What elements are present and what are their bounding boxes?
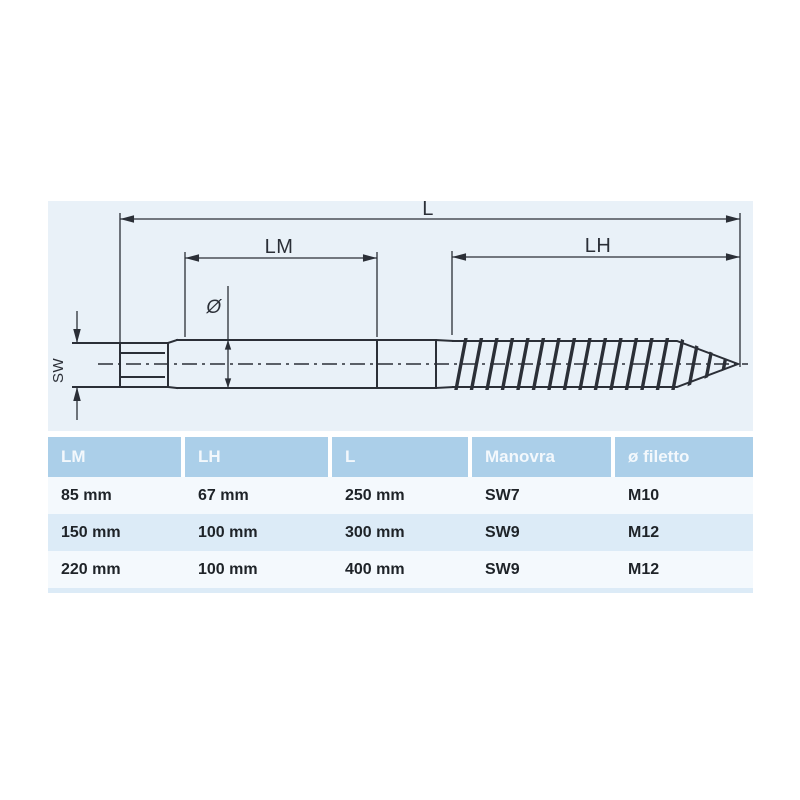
cell-lh: 100 mm <box>185 514 332 551</box>
cell-lm: 150 mm <box>48 514 185 551</box>
column-header-l: L <box>332 437 472 477</box>
cell-l: 300 mm <box>332 514 472 551</box>
technical-drawing-panel: L LM LH Ø <box>48 201 753 431</box>
column-header-lh: LH <box>185 437 332 477</box>
label-wrench-size: SW <box>50 357 67 383</box>
cell-lm: 220 mm <box>48 551 185 588</box>
dimension-diameter <box>225 286 231 388</box>
table-footer-strip <box>48 588 753 593</box>
table-header-row: LM LH L Manovra ø filetto <box>48 437 753 477</box>
cell-filetto: M10 <box>615 477 753 514</box>
dimensions-table: LM LH L Manovra ø filetto 85 mm 67 mm 25… <box>48 437 753 593</box>
cell-l: 250 mm <box>332 477 472 514</box>
cell-manovra: SW9 <box>472 514 615 551</box>
cell-filetto: M12 <box>615 551 753 588</box>
label-wood-thread-length: LH <box>585 235 612 257</box>
dimension-lh <box>452 251 740 335</box>
cell-lm: 85 mm <box>48 477 185 514</box>
label-diameter: Ø <box>205 297 222 318</box>
column-header-lm: LM <box>48 437 185 477</box>
table-row: 220 mm 100 mm 400 mm SW9 M12 <box>48 551 753 588</box>
column-header-manovra: Manovra <box>472 437 615 477</box>
table-row: 150 mm 100 mm 300 mm SW9 M12 <box>48 514 753 551</box>
hanger-bolt-technical-drawing: L LM LH Ø <box>48 201 753 431</box>
label-total-length: L <box>422 201 434 220</box>
dimension-lm <box>185 252 377 337</box>
wood-thread-hatching <box>453 338 738 390</box>
page: L LM LH Ø <box>0 0 800 800</box>
label-machine-thread-length: LM <box>265 236 294 258</box>
cell-lh: 67 mm <box>185 477 332 514</box>
cell-lh: 100 mm <box>185 551 332 588</box>
table-row: 85 mm 67 mm 250 mm SW7 M10 <box>48 477 753 514</box>
cell-manovra: SW9 <box>472 551 615 588</box>
column-header-diametro-filetto: ø filetto <box>615 437 753 477</box>
cell-l: 400 mm <box>332 551 472 588</box>
cell-filetto: M12 <box>615 514 753 551</box>
cell-manovra: SW7 <box>472 477 615 514</box>
